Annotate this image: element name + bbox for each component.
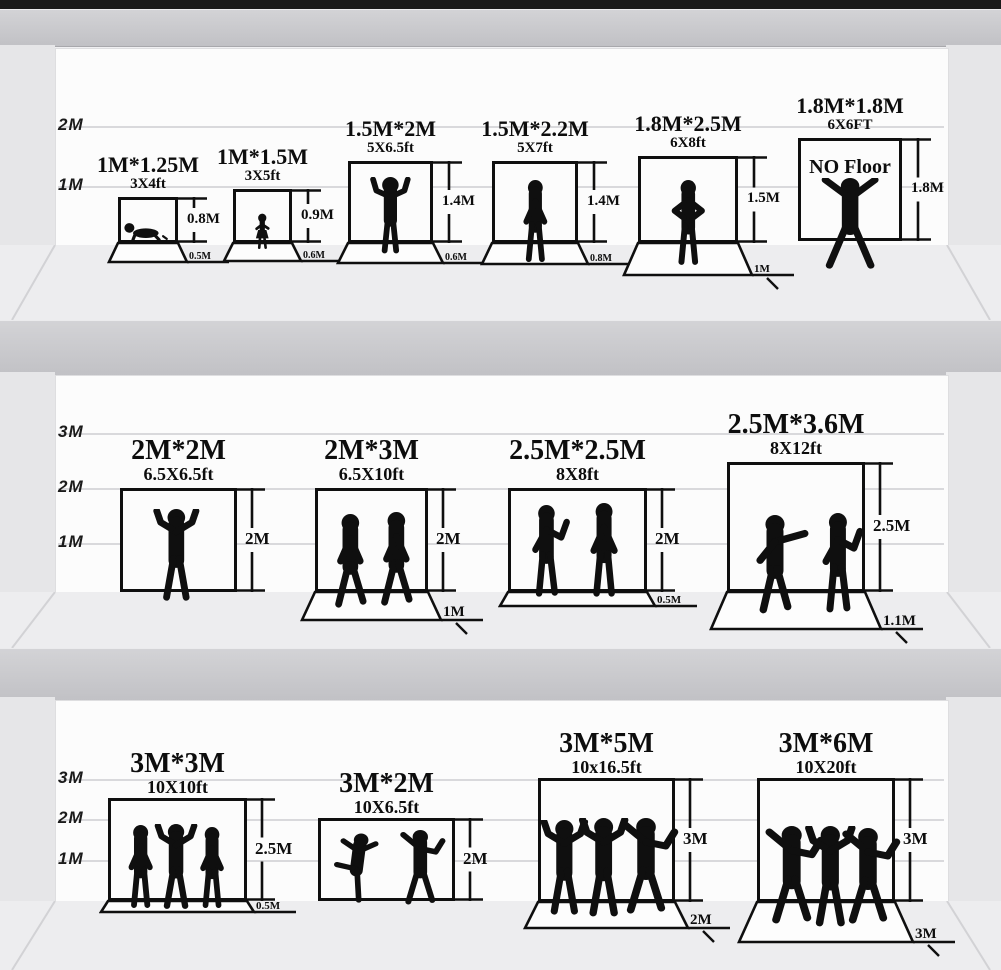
height-dimension-label: 2M (245, 529, 270, 549)
floor-depth-label: 0.5M (657, 594, 681, 606)
talking-person-icon (517, 505, 576, 600)
backdrop-size-title: 1.8M*1.8M (730, 95, 970, 118)
top-black-bar (0, 0, 1001, 9)
backdrop-size-title: 3M*5M (487, 729, 727, 758)
height-dimension-label: 0.8M (187, 211, 220, 228)
floor-depth-label: 1M (443, 604, 465, 621)
dancing-person-icon (611, 818, 681, 918)
height-dimension-label: 2M (436, 529, 461, 549)
talking-person-icon (806, 513, 870, 616)
walking-person-icon (365, 512, 428, 610)
backdrop-floor-mat (107, 241, 231, 265)
backdrop-title-block: 2.5M*3.6M8X12ft (676, 410, 916, 458)
height-dimension-label: 0.9M (301, 207, 334, 224)
toddler-icon (251, 212, 275, 252)
backdrop-title-block: 3M*6M10X20ft (706, 729, 946, 777)
backdrop-size-title: 2.5M*3.6M (676, 410, 916, 439)
backdrop-size-subtitle: 3X5ft (143, 169, 383, 185)
backdrop-size-title: 3M*3M (58, 749, 298, 778)
floor-depth-tick (702, 930, 715, 943)
backdrop-title-block: 1.8M*1.8M6X6FT (730, 95, 970, 134)
standing-person-icon (186, 827, 238, 911)
backdrop-size-subtitle: 8X8ft (458, 465, 698, 484)
standing-person-icon (574, 503, 634, 600)
side-panel-left (0, 372, 55, 592)
standing-person-icon (509, 180, 562, 265)
pointing-person-icon (741, 515, 809, 618)
height-dimension-label: 2.5M (873, 516, 910, 536)
backdrop-size-title: 3M*6M (706, 729, 946, 758)
floor-depth-tick (927, 944, 940, 957)
backdrop-size-subtitle: 6X6FT (730, 118, 970, 134)
backdrop-title-block: 2.5M*2.5M8X8ft (458, 436, 698, 484)
meter-label: 1M (58, 532, 84, 552)
floor-depth-label: 0.8M (590, 253, 612, 264)
floor-depth-tick (455, 622, 468, 635)
backdrop-size-subtitle: 10X10ft (58, 778, 298, 797)
height-dimension-label: 2.5M (255, 839, 292, 859)
height-dimension-label: 1.8M (911, 180, 944, 197)
side-panel-right (946, 372, 1001, 592)
hands-on-hips-person-icon (661, 180, 716, 268)
height-dimension-label: 1.4M (587, 193, 620, 210)
meter-label: 2M (58, 115, 84, 135)
floor-depth-label: 0.5M (189, 251, 211, 262)
backdrop-title-block: 2M*3M6.5X10ft (252, 436, 492, 484)
backdrop-title-block: 3M*5M10x16.5ft (487, 729, 727, 777)
floor-depth-label: 0.5M (256, 900, 280, 912)
backdrop-floor-mat (222, 241, 345, 264)
backdrop-title-block: 3M*3M10X10ft (58, 749, 298, 797)
backdrop-size-title: 3M*2M (267, 769, 507, 798)
height-dimension-label: 3M (683, 829, 708, 849)
height-dimension-label: 2M (463, 849, 488, 869)
meter-label: 2M (58, 808, 84, 828)
shelf-divider (0, 648, 1001, 702)
dancing-person-icon (833, 828, 903, 928)
backdrop-size-subtitle: 6.5X10ft (252, 465, 492, 484)
height-dimension-label: 2M (655, 529, 680, 549)
floor-depth-tick (766, 277, 779, 290)
shelf-divider (0, 9, 1001, 47)
backdrop-size-title: 2.5M*2.5M (458, 436, 698, 465)
shelf-divider (0, 320, 1001, 377)
backdrop-size-chart: 2M1M0.5M0.8M1M*1.25M3X4ft0.6M0.9M1M*1.5M… (0, 0, 1001, 970)
height-dimension-label: 3M (903, 829, 928, 849)
floor-depth-label: 2M (690, 912, 712, 929)
backdrop-size-subtitle: 10X20ft (706, 758, 946, 777)
crawling-baby-icon (123, 217, 169, 241)
dancing-person-icon (393, 830, 448, 908)
floor-depth-label: 1.1M (883, 613, 916, 630)
side-panel-left (0, 697, 55, 901)
height-dimension-label: 1.5M (747, 190, 780, 207)
backdrop-size-subtitle: 8X12ft (676, 439, 916, 458)
floor-depth-label: 0.6M (445, 252, 467, 263)
backdrop-size-subtitle: 6X8ft (568, 136, 808, 152)
floor-depth-tick (895, 631, 908, 644)
arms-up-person-icon (145, 509, 208, 604)
floor-depth-label: 1M (754, 263, 770, 275)
backdrop-size-subtitle: 10x16.5ft (487, 758, 727, 777)
side-panel-left (0, 45, 55, 245)
meter-label: 1M (58, 849, 84, 869)
floor-depth-label: 3M (915, 926, 937, 943)
height-dimension-label: 1.4M (442, 193, 475, 210)
backdrop-size-subtitle: 10X6.5ft (267, 798, 507, 817)
backdrop-title-block: 3M*2M10X6.5ft (267, 769, 507, 817)
child-arms-raised-icon (364, 177, 417, 257)
backdrop-size-title: 2M*3M (252, 436, 492, 465)
floor-depth-label: 0.6M (303, 250, 325, 261)
no-floor-label: NO Floor (770, 156, 930, 179)
kicking-person-icon (332, 832, 384, 906)
arms-spread-person-icon (817, 178, 883, 270)
